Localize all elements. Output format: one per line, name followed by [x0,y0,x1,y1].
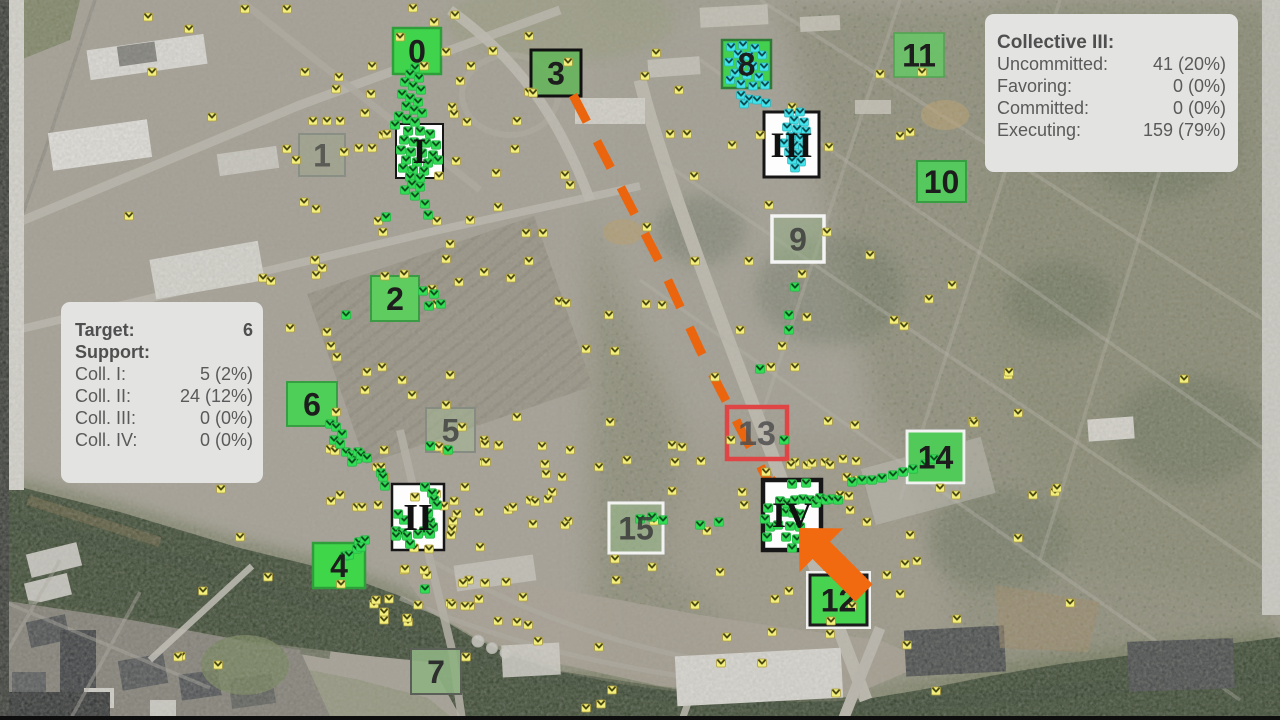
svg-text:4: 4 [330,548,348,584]
svg-text:5 (2%): 5 (2%) [200,364,253,384]
svg-text:9: 9 [789,222,807,258]
svg-text:41 (20%): 41 (20%) [1153,54,1226,74]
svg-text:15: 15 [618,511,654,547]
svg-text:1: 1 [313,138,331,174]
svg-text:0 (0%): 0 (0%) [200,408,253,428]
svg-text:10: 10 [924,164,960,200]
svg-text:0 (0%): 0 (0%) [200,430,253,450]
svg-text:Coll. I:: Coll. I: [75,364,126,384]
svg-text:Collective III:: Collective III: [997,32,1114,53]
svg-text:11: 11 [902,38,936,74]
svg-text:Committed:: Committed: [997,98,1089,118]
svg-text:Uncommitted:: Uncommitted: [997,54,1108,74]
svg-text:Target:: Target: [75,320,135,340]
svg-text:II: II [403,497,433,539]
svg-text:0 (0%): 0 (0%) [1173,98,1226,118]
svg-text:0 (0%): 0 (0%) [1173,76,1226,96]
svg-text:Coll. IV:: Coll. IV: [75,430,137,450]
svg-text:Coll. II:: Coll. II: [75,386,131,406]
svg-text:24 (12%): 24 (12%) [180,386,253,406]
svg-text:III: III [770,125,812,165]
svg-text:8: 8 [738,47,756,83]
svg-text:2: 2 [386,281,404,317]
svg-text:Coll. III:: Coll. III: [75,408,136,428]
svg-text:Favoring:: Favoring: [997,76,1072,96]
svg-text:0: 0 [408,34,426,70]
svg-text:14: 14 [918,440,954,476]
svg-text:13: 13 [738,415,776,453]
svg-text:7: 7 [427,654,445,690]
svg-text:Executing:: Executing: [997,120,1081,140]
svg-text:6: 6 [303,387,321,423]
svg-text:Support:: Support: [75,342,150,362]
svg-text:6: 6 [243,320,253,340]
svg-text:3: 3 [547,56,565,92]
svg-text:159 (79%): 159 (79%) [1143,120,1226,140]
svg-text:I: I [412,131,426,171]
svg-text:5: 5 [442,413,460,449]
